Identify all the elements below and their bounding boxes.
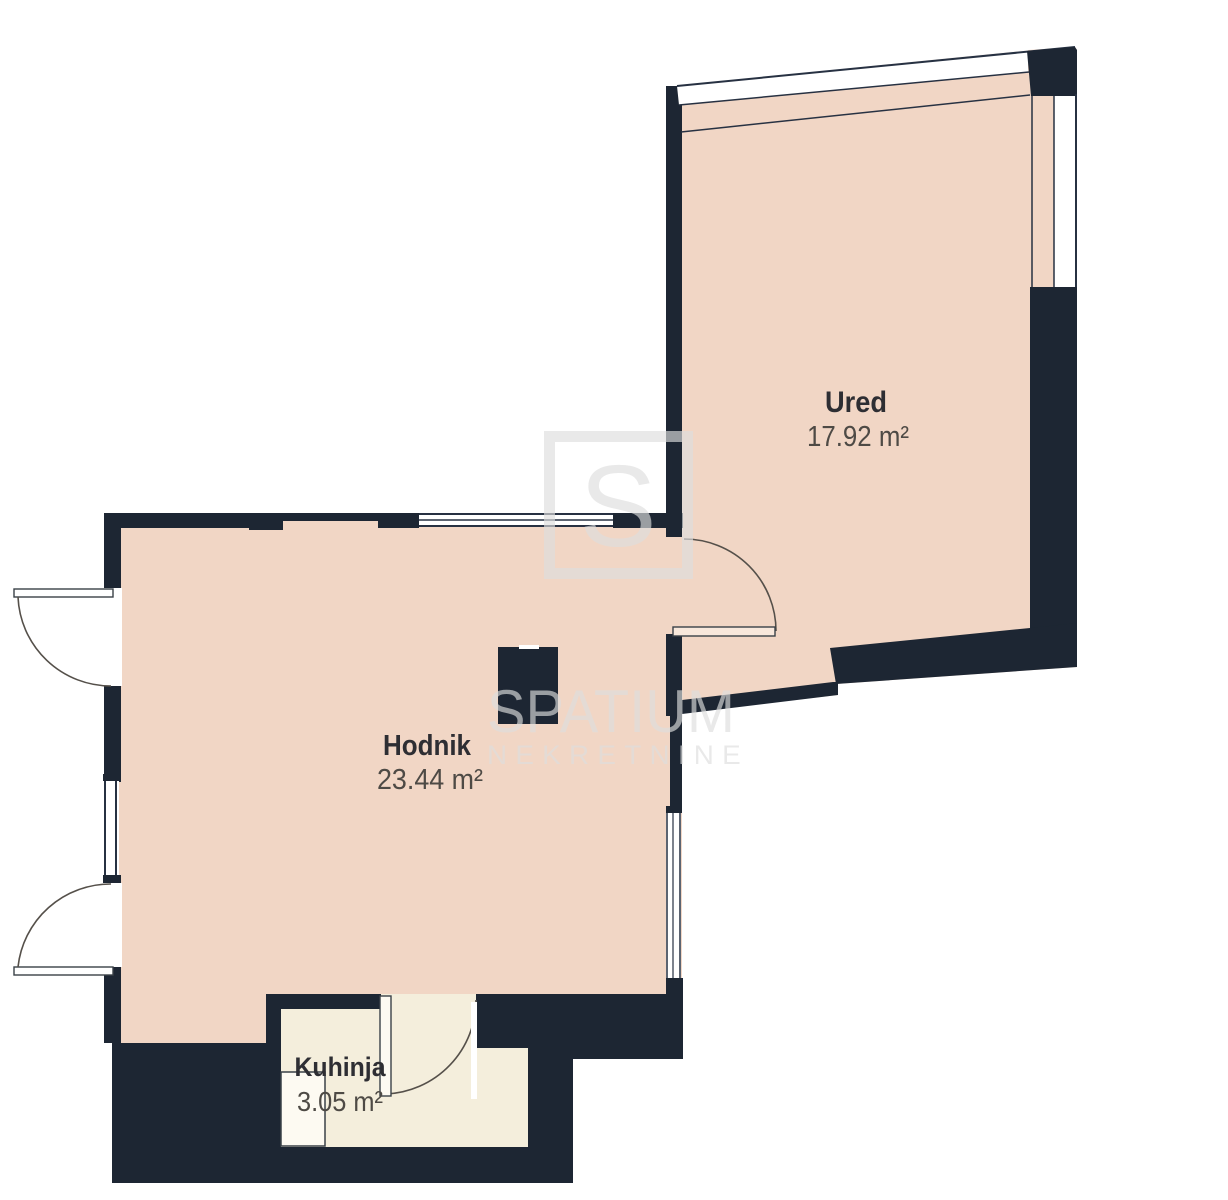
- svg-text:17.92 m²: 17.92 m²: [807, 421, 909, 453]
- svg-text:NEKRETNINE: NEKRETNINE: [487, 740, 749, 770]
- svg-text:3.05 m²: 3.05 m²: [297, 1086, 383, 1117]
- svg-text:S: S: [579, 441, 656, 571]
- svg-text:23.44 m²: 23.44 m²: [377, 764, 483, 796]
- svg-text:Ured: Ured: [825, 386, 887, 419]
- svg-text:Kuhinja: Kuhinja: [295, 1052, 387, 1082]
- svg-text:Hodnik: Hodnik: [383, 730, 472, 762]
- svg-text:SPATIUM: SPATIUM: [487, 678, 735, 745]
